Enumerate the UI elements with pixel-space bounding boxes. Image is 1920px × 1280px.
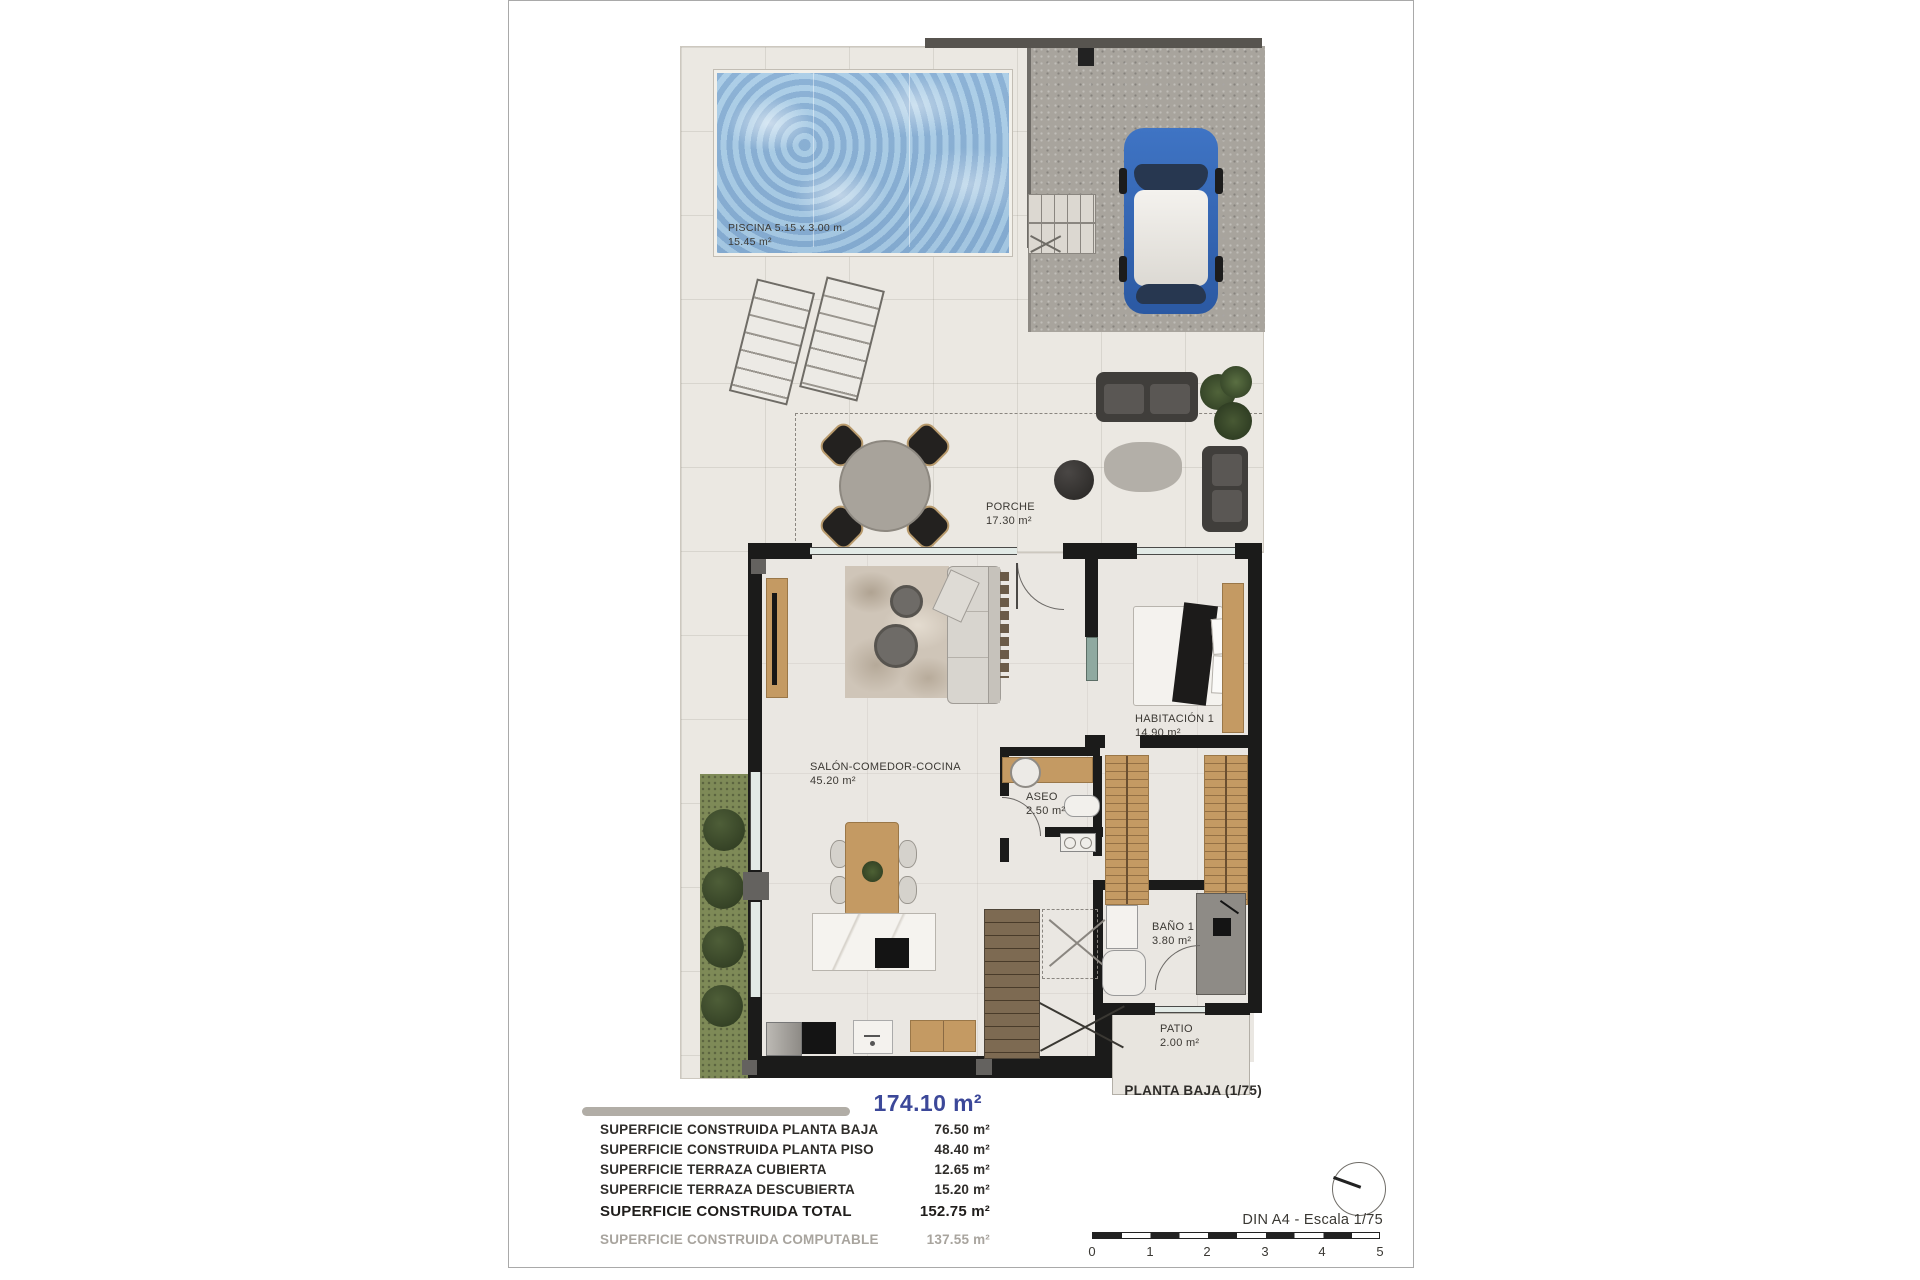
- sliding-door: [1086, 637, 1098, 681]
- bano-label-area: 3.80 m²: [1152, 934, 1194, 948]
- aseo-label: ASEO 2.50 m²: [1026, 790, 1065, 819]
- kitchen-island: [812, 913, 936, 971]
- porch-label: PORCHE 17.30 m²: [986, 500, 1035, 529]
- outdoor-rug: [1104, 442, 1182, 492]
- kitchen-sink: [853, 1020, 893, 1054]
- salon-label: SALÓN-COMEDOR-COCINA 45.20 m²: [810, 760, 961, 789]
- pool-joint-line: [813, 73, 814, 247]
- outdoor-sofa: [1096, 372, 1198, 422]
- sofa-cushion: [1212, 490, 1242, 522]
- bush: [703, 809, 745, 851]
- floor-plan-title: PLANTA BAJA (1/75): [1100, 1083, 1262, 1098]
- patio-label-area: 2.00 m²: [1160, 1036, 1199, 1050]
- wardrobe: [1105, 755, 1149, 905]
- scale-caption: DIN A4 - Escala 1/75: [1150, 1212, 1383, 1228]
- sofa-cushion: [1104, 384, 1144, 414]
- plant: [1200, 366, 1256, 444]
- outdoor-sofa-side: [1202, 446, 1248, 532]
- row-label: SUPERFICIE CONSTRUIDA COMPUTABLE: [600, 1232, 879, 1247]
- shower: [1196, 893, 1246, 995]
- scale-tick: 2: [1195, 1244, 1219, 1259]
- shelf-dots: [1000, 572, 1009, 678]
- partition-wall: [1085, 559, 1098, 637]
- bano-label: BAÑO 1 3.80 m²: [1152, 920, 1194, 949]
- bedroom-window: [1137, 547, 1235, 555]
- row-label: SUPERFICIE TERRAZA CUBIERTA: [600, 1162, 827, 1177]
- redacted-bar: [582, 1107, 850, 1116]
- aseo-wall-left: [1000, 838, 1009, 862]
- plant-foliage: [1220, 366, 1252, 398]
- window: [750, 902, 761, 997]
- tv-unit: [766, 578, 788, 698]
- stairs-dashed-projection: [1042, 909, 1098, 979]
- bano-label-name: BAÑO 1: [1152, 920, 1194, 934]
- pool-label-area: 15.45 m²: [728, 236, 846, 250]
- pillar: [976, 1059, 992, 1075]
- outdoor-table: [839, 440, 931, 532]
- patio-label: PATIO 2.00 m²: [1160, 1022, 1199, 1051]
- row-label: SUPERFICIE CONSTRUIDA TOTAL: [600, 1203, 852, 1220]
- row-label: SUPERFICIE CONSTRUIDA PLANTA BAJA: [600, 1122, 878, 1137]
- car-wheel: [1119, 256, 1127, 282]
- wardrobe: [1204, 755, 1248, 905]
- row-label: SUPERFICIE CONSTRUIDA PLANTA PISO: [600, 1142, 874, 1157]
- oven: [802, 1022, 836, 1054]
- north-indicator: [1332, 1162, 1386, 1216]
- row-value: 137.55 m²: [927, 1232, 990, 1247]
- row-value: 48.40 m²: [934, 1142, 990, 1157]
- sofa-seam: [948, 657, 988, 658]
- porch-label-area: 17.30 m²: [986, 514, 1035, 528]
- fridge: [766, 1022, 802, 1056]
- car-wheel: [1215, 168, 1223, 194]
- row-value: 15.20 m²: [934, 1182, 990, 1197]
- floor-plan-page: PISCINA 5.15 x 3.00 m. 15.45 m² PORCHE 1…: [0, 0, 1920, 1280]
- shower-head: [1213, 918, 1231, 936]
- faucet: [870, 1041, 875, 1046]
- dining-table: [845, 822, 899, 916]
- bush: [702, 926, 744, 968]
- patio-sliding-door: [1155, 1006, 1205, 1013]
- surface-table: SUPERFICIE CONSTRUIDA PLANTA BAJA 76.50 …: [600, 1119, 990, 1249]
- wall-bottom: [748, 1056, 1112, 1078]
- tv: [772, 593, 777, 685]
- coffee-table-large: [874, 624, 918, 668]
- window: [750, 772, 761, 870]
- aseo-wall-top: [1000, 747, 1100, 756]
- habitacion-label-name: HABITACIÓN 1: [1135, 712, 1214, 726]
- bush: [702, 867, 744, 909]
- bush: [701, 985, 743, 1027]
- scale-tick: 3: [1253, 1244, 1277, 1259]
- pool-joint-line: [909, 73, 910, 247]
- scale-bar: [1092, 1232, 1380, 1239]
- faucet-arm: [864, 1035, 880, 1037]
- table-row: SUPERFICIE TERRAZA CUBIERTA 12.65 m²: [600, 1159, 990, 1179]
- car: [1124, 128, 1218, 314]
- sliding-glass-door: [810, 547, 1017, 555]
- entrance-door-leaf: [1016, 563, 1018, 609]
- pouf: [1054, 460, 1094, 500]
- aseo-label-name: ASEO: [1026, 790, 1065, 804]
- table-row: SUPERFICIE CONSTRUIDA PLANTA PISO 48.40 …: [600, 1139, 990, 1159]
- aseo-sink: [1010, 757, 1041, 788]
- car-rear-window: [1136, 284, 1206, 304]
- habitacion-label-area: 14.90 m²: [1135, 726, 1214, 740]
- aseo-label-area: 2.50 m²: [1026, 804, 1065, 818]
- dining-chair: [898, 876, 917, 904]
- boundary-wall-top: [925, 38, 1262, 48]
- pillar: [743, 872, 769, 900]
- row-value: 152.75 m²: [920, 1203, 990, 1220]
- bathtub: [1102, 950, 1146, 996]
- sofa-cushion: [1150, 384, 1190, 414]
- porch-label-name: PORCHE: [986, 500, 1035, 514]
- car-wheel: [1119, 168, 1127, 194]
- bathroom-sink: [1106, 905, 1138, 949]
- row-label: SUPERFICIE TERRAZA DESCUBIERTA: [600, 1182, 855, 1197]
- car-wheel: [1215, 256, 1223, 282]
- pillar-top: [1078, 48, 1094, 66]
- porch-dashed-line-vertical: [795, 413, 797, 551]
- washer-drum-icon: [1064, 837, 1076, 849]
- habitacion-label: HABITACIÓN 1 14.90 m²: [1135, 712, 1214, 741]
- row-value: 76.50 m²: [934, 1122, 990, 1137]
- sofa-backrest: [988, 567, 1000, 703]
- table-row: SUPERFICIE TERRAZA DESCUBIERTA 15.20 m²: [600, 1179, 990, 1199]
- kitchen-cabinet: [910, 1020, 976, 1052]
- hob: [875, 938, 909, 968]
- table-row-computable: SUPERFICIE CONSTRUIDA COMPUTABLE 137.55 …: [600, 1229, 990, 1249]
- toilet: [1064, 795, 1100, 817]
- coffee-table-small: [890, 585, 923, 618]
- table-row-total: SUPERFICIE CONSTRUIDA TOTAL 152.75 m²: [600, 1199, 990, 1223]
- washer-unit: [1060, 833, 1096, 852]
- scale-tick: 0: [1080, 1244, 1104, 1259]
- pillar: [742, 1060, 757, 1075]
- salon-label-name: SALÓN-COMEDOR-COCINA: [810, 760, 961, 774]
- shower-arm: [1220, 900, 1239, 914]
- salon-label-area: 45.20 m²: [810, 774, 961, 788]
- scale-tick: 4: [1310, 1244, 1334, 1259]
- interior-stairs: [984, 909, 1040, 1059]
- headboard: [1222, 583, 1244, 733]
- car-windshield: [1134, 164, 1208, 192]
- sofa-cushion: [1212, 454, 1242, 486]
- stair-rail-line: [1029, 222, 1095, 224]
- pool-label: PISCINA 5.15 x 3.00 m. 15.45 m²: [728, 222, 846, 249]
- car-roof: [1134, 190, 1208, 286]
- exterior-stairs: [1028, 194, 1096, 254]
- scale-tick: 1: [1138, 1244, 1162, 1259]
- dining-chair: [898, 840, 917, 868]
- table-plant: [862, 861, 883, 882]
- washer-drum-icon: [1080, 837, 1092, 849]
- pool-label-name: PISCINA 5.15 x 3.00 m.: [728, 222, 846, 236]
- wall-right: [1248, 543, 1262, 1013]
- table-row: SUPERFICIE CONSTRUIDA PLANTA BAJA 76.50 …: [600, 1119, 990, 1139]
- row-value: 12.65 m²: [934, 1162, 990, 1177]
- plant-foliage: [1214, 402, 1252, 440]
- scale-tick: 5: [1368, 1244, 1392, 1259]
- pillar: [751, 559, 766, 574]
- wall: [1063, 543, 1137, 559]
- patio-wall: [1205, 1003, 1250, 1015]
- patio-label-name: PATIO: [1160, 1022, 1199, 1036]
